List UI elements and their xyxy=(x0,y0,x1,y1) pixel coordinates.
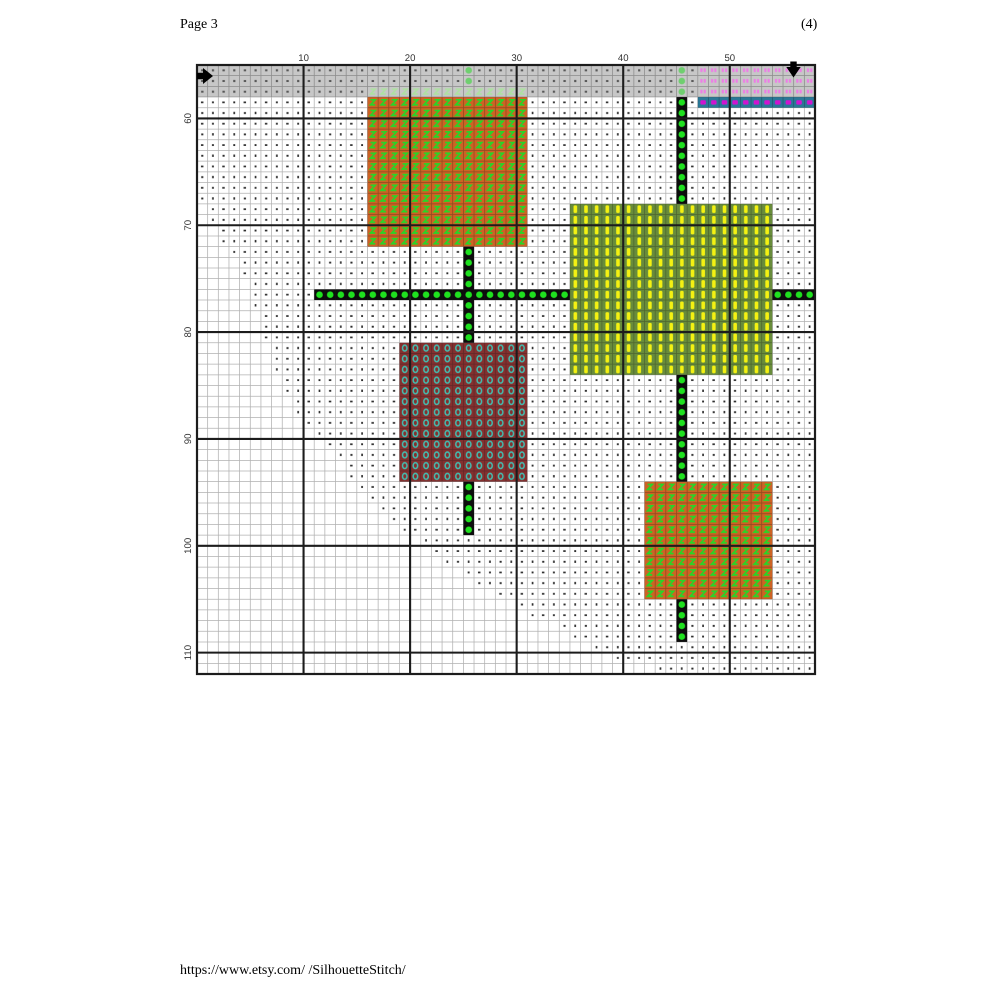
svg-text:110: 110 xyxy=(183,645,194,660)
svg-text:100: 100 xyxy=(183,538,194,554)
svg-text:40: 40 xyxy=(618,53,629,64)
svg-text:80: 80 xyxy=(183,327,194,338)
svg-text:70: 70 xyxy=(183,220,194,231)
svg-text:60: 60 xyxy=(183,113,194,124)
svg-text:90: 90 xyxy=(183,434,194,445)
svg-text:10: 10 xyxy=(298,53,309,64)
svg-text:30: 30 xyxy=(511,53,522,64)
svg-text:20: 20 xyxy=(405,53,416,64)
svg-text:50: 50 xyxy=(724,53,735,64)
